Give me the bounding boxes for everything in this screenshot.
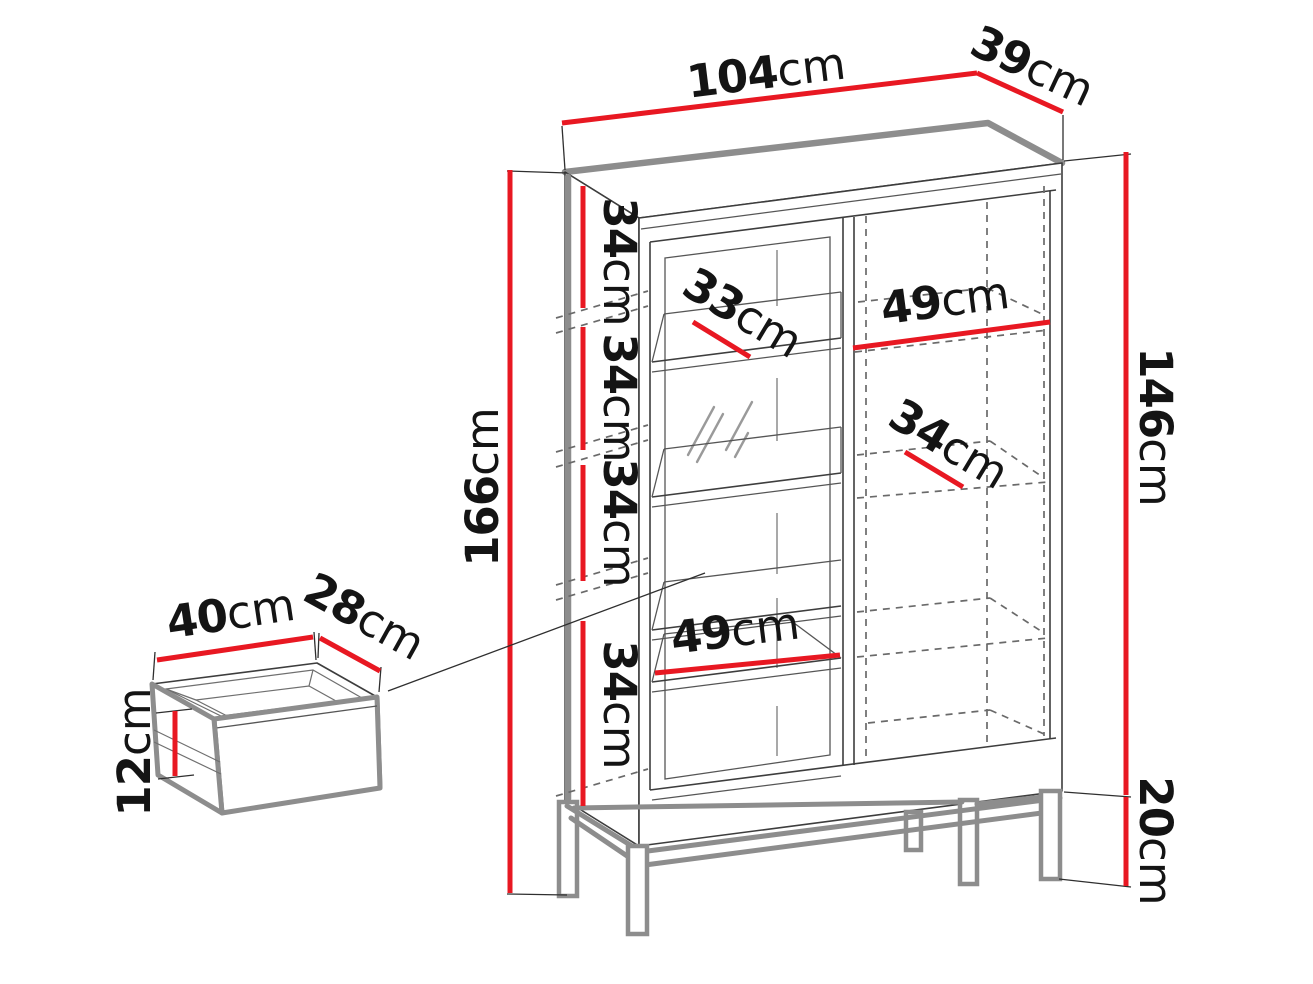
drawer-drawing: 40cm 28cm 12cm bbox=[108, 562, 434, 817]
label-shelf-section-3: 34cm bbox=[593, 458, 646, 587]
furniture-dimension-diagram: 104cm 39cm 166cm 146cm 20cm bbox=[0, 0, 1313, 984]
cabinet-leg-front-left bbox=[628, 846, 647, 934]
cabinet-leg-back-left bbox=[559, 802, 577, 896]
dimension-total-height: 166cm bbox=[456, 170, 567, 895]
label-drawer-width: 40cm bbox=[163, 578, 299, 650]
label-body-height: 146cm bbox=[1129, 347, 1182, 507]
label-shelf-section-2: 34cm bbox=[593, 333, 646, 462]
drawer-front-face bbox=[214, 697, 380, 813]
cabinet-leg-front-right bbox=[1041, 791, 1060, 879]
label-shelf-section-1: 34cm bbox=[593, 197, 646, 326]
dimension-drawer-width: 40cm bbox=[153, 578, 316, 680]
dimension-drawer-depth: 28cm bbox=[295, 562, 434, 692]
label-shelf-section-4: 34cm bbox=[593, 640, 646, 769]
label-total-height: 166cm bbox=[456, 407, 509, 567]
label-top-width: 104cm bbox=[684, 37, 849, 109]
dimension-body-height: 146cm bbox=[1064, 152, 1182, 795]
label-drawer-height: 12cm bbox=[108, 687, 161, 816]
label-top-depth: 39cm bbox=[963, 15, 1102, 118]
label-leg-height: 20cm bbox=[1129, 776, 1182, 905]
drawer-left-face bbox=[152, 684, 222, 813]
dimension-leg-height: 20cm bbox=[1059, 776, 1182, 905]
